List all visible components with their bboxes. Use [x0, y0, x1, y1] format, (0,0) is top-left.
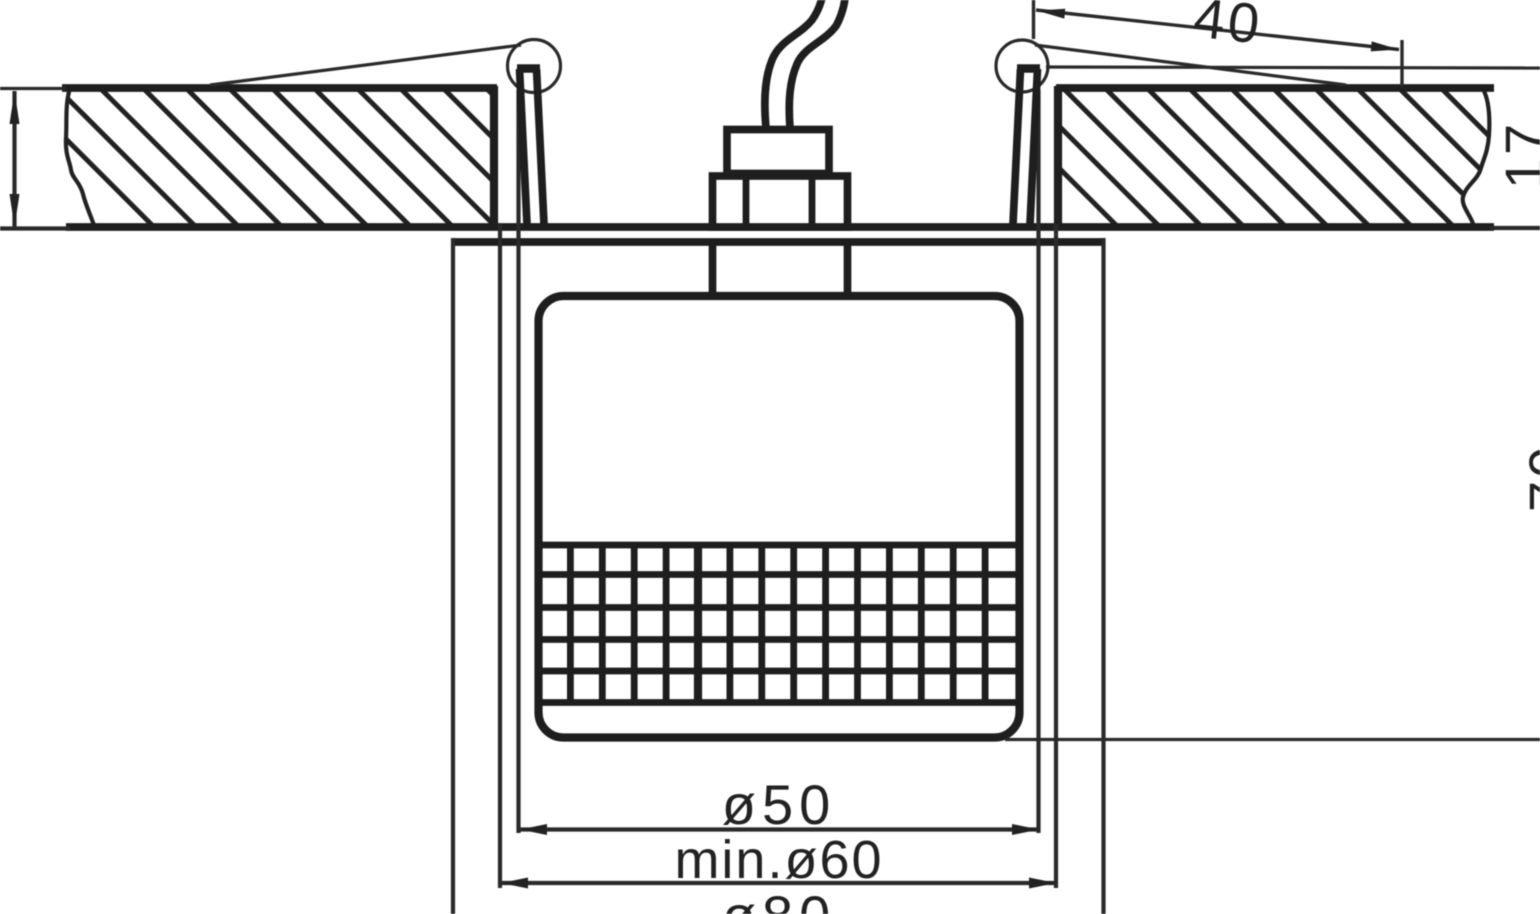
- svg-text:40: 40: [1191, 0, 1266, 56]
- svg-text:70: 70: [1517, 444, 1540, 512]
- svg-text:ø50: ø50: [722, 773, 837, 836]
- svg-text:17: 17: [1493, 121, 1540, 189]
- svg-text:min.ø60: min.ø60: [674, 830, 883, 890]
- svg-text:ø80: ø80: [722, 884, 837, 914]
